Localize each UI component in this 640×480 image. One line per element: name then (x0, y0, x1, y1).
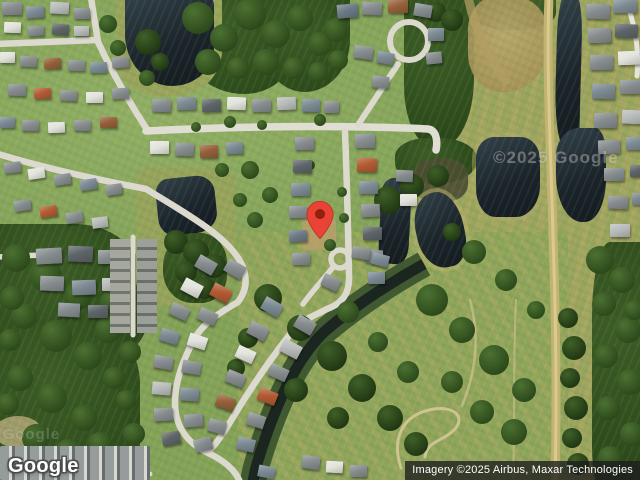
tree (283, 57, 305, 79)
house-roof (150, 141, 169, 154)
house-roof (361, 204, 380, 218)
tree (7, 365, 33, 391)
house-roof (22, 120, 39, 132)
house-roof (301, 455, 321, 470)
house-roof (604, 168, 624, 181)
house-roof (68, 60, 85, 72)
house-roof (53, 173, 71, 186)
house-roof (615, 24, 638, 39)
tree (324, 18, 348, 42)
tree (327, 407, 349, 429)
house-roof (428, 28, 444, 41)
house-roof (4, 22, 21, 34)
house-roof (295, 137, 314, 150)
tree (441, 371, 463, 393)
tree (615, 317, 640, 343)
tree (182, 2, 214, 34)
tree (2, 244, 30, 272)
tree (558, 308, 578, 328)
tree (560, 368, 580, 388)
house-roof (50, 2, 70, 15)
tree (443, 223, 461, 241)
tree (262, 20, 290, 48)
pin-body (307, 201, 333, 238)
house-roof (626, 137, 640, 150)
tree (624, 300, 640, 320)
house-roof (396, 170, 414, 183)
house-roof (289, 230, 307, 243)
tree (512, 378, 536, 402)
house-roof (324, 101, 339, 113)
tree (328, 50, 348, 70)
tree (40, 320, 72, 352)
house-roof (44, 58, 62, 70)
house-roof (622, 110, 640, 125)
house-roof (20, 56, 38, 68)
house-roof (594, 113, 617, 128)
tree (427, 165, 449, 187)
tree (596, 396, 620, 420)
tree (501, 419, 527, 445)
house-roof (226, 142, 243, 155)
house-roof (362, 1, 383, 15)
tree (151, 53, 169, 71)
tree (462, 240, 486, 264)
tree (210, 24, 238, 52)
house-roof (252, 99, 271, 112)
house-roof (350, 465, 367, 477)
tree (495, 269, 517, 291)
tree (227, 57, 249, 79)
house-roof (326, 461, 344, 474)
house-roof (588, 28, 612, 44)
tree (0, 286, 24, 310)
townhome-row-east (137, 239, 157, 333)
house-roof (27, 167, 45, 180)
pin-dot (315, 209, 325, 219)
tree (368, 332, 388, 352)
house-roof (618, 51, 640, 66)
house-roof (65, 211, 83, 224)
house-roof (175, 143, 194, 157)
house-roof (355, 134, 375, 148)
house-roof (291, 183, 310, 196)
house-roof (371, 75, 389, 89)
tree (195, 49, 221, 75)
house-roof (88, 305, 108, 318)
house-roof (3, 161, 21, 174)
tree (586, 246, 614, 274)
house-roof (292, 253, 310, 265)
tree (449, 317, 475, 343)
house-roof (105, 183, 122, 196)
house-roof (40, 276, 65, 292)
house-roof (79, 178, 97, 191)
tree (99, 15, 117, 33)
tree (262, 187, 278, 203)
tree (317, 341, 347, 371)
tree (416, 284, 448, 316)
house-roof (100, 117, 117, 128)
tree (308, 62, 328, 82)
house-roof (632, 193, 640, 205)
tree (247, 212, 263, 228)
house-roof (353, 45, 374, 61)
tree (562, 428, 582, 448)
house-roof (0, 52, 15, 63)
house-roof (630, 165, 640, 177)
tree (609, 267, 635, 293)
house-roof (28, 26, 45, 37)
house-roof (368, 272, 385, 284)
tree (123, 423, 145, 445)
house-roof (68, 246, 94, 263)
house-roof (400, 194, 417, 206)
house-roof (0, 117, 15, 128)
location-pin-icon[interactable] (306, 199, 334, 241)
house-roof (610, 224, 630, 237)
house-roof (60, 90, 78, 102)
house-roof (74, 120, 92, 132)
tree (620, 422, 640, 446)
house-roof (336, 3, 358, 19)
tree (592, 292, 616, 316)
house-roof (112, 56, 130, 68)
house-roof (590, 55, 613, 70)
house-roof (289, 206, 307, 218)
house-roof (2, 2, 22, 15)
house-roof (180, 387, 200, 401)
tree (287, 5, 313, 31)
house-roof (154, 408, 173, 422)
house-roof (74, 8, 90, 19)
house-roof (227, 97, 246, 111)
tree (470, 400, 494, 424)
tree (339, 213, 349, 223)
house-roof (177, 97, 196, 110)
tree (314, 114, 326, 126)
house-roof (277, 97, 296, 111)
tree (103, 367, 125, 389)
google-watermark: ©2025 Google (493, 148, 619, 168)
tree (377, 405, 403, 431)
house-roof (359, 181, 378, 194)
tree (348, 374, 376, 402)
tree (233, 193, 247, 207)
house-roof (152, 99, 171, 113)
tree (215, 163, 229, 177)
map-viewport[interactable]: ©2025 Google ©2025 Google Google Imagery… (0, 0, 640, 480)
tree (74, 342, 102, 370)
tree (71, 405, 97, 431)
house-roof (425, 51, 442, 65)
house-roof (363, 227, 382, 240)
tree (397, 361, 419, 383)
house-roof (586, 4, 611, 20)
house-roof (36, 247, 63, 264)
tree (479, 345, 509, 375)
house-roof (91, 216, 108, 229)
tree (337, 301, 359, 323)
google-watermark-2: ©2025 Google (0, 426, 60, 443)
google-logo[interactable]: Google (8, 455, 79, 478)
house-roof (388, 0, 408, 13)
tree (337, 187, 347, 197)
house-roof (613, 0, 637, 13)
house-roof (302, 99, 320, 113)
house-roof (48, 122, 65, 134)
house-roof (34, 88, 51, 100)
tree (257, 120, 267, 130)
house-roof (90, 62, 107, 73)
house-roof (151, 381, 171, 396)
tree (119, 341, 141, 363)
house-roof (293, 160, 312, 174)
house-roof (86, 92, 103, 103)
house-roof (13, 199, 31, 212)
tree (527, 301, 545, 319)
house-roof (357, 158, 377, 173)
house-roof (200, 145, 218, 158)
house-roof (72, 280, 97, 296)
house-roof (8, 84, 26, 97)
tree (0, 329, 21, 351)
house-roof (620, 80, 640, 94)
house-roof (58, 302, 81, 317)
house-roof (184, 413, 204, 427)
house-roof (74, 26, 89, 36)
tree (191, 122, 201, 132)
house-roof (202, 99, 221, 113)
house-roof (39, 205, 57, 218)
house-roof (112, 88, 130, 100)
house-roof (592, 84, 616, 100)
tree (135, 29, 161, 55)
tree (404, 432, 428, 456)
tree (110, 40, 126, 56)
tree (617, 369, 640, 395)
house-roof (608, 196, 628, 210)
house-roof (52, 23, 70, 35)
tree (564, 396, 588, 420)
tree (116, 390, 136, 410)
house-roof (26, 5, 45, 18)
tree (37, 383, 67, 413)
tree (241, 161, 259, 179)
tree (253, 49, 279, 75)
tree (139, 70, 155, 86)
tree (441, 9, 463, 31)
tree (594, 344, 618, 368)
imagery-attribution: Imagery ©2025 Airbus, Maxar Technologies (405, 461, 640, 480)
tree (562, 336, 586, 360)
tree (284, 378, 308, 402)
tree (224, 116, 236, 128)
townhome-row-west (110, 239, 130, 333)
